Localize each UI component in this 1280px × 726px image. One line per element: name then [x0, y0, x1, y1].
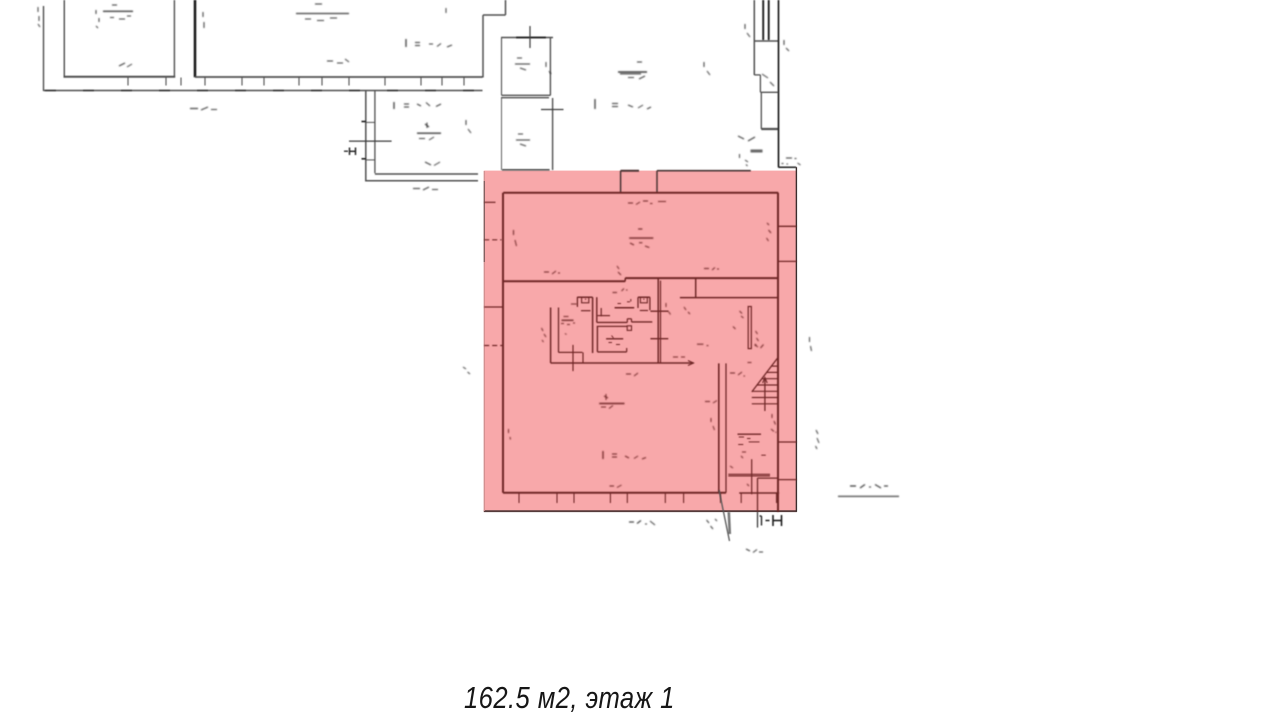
- svg-text:162.5 м2, этаж 1: 162.5 м2, этаж 1: [464, 681, 675, 715]
